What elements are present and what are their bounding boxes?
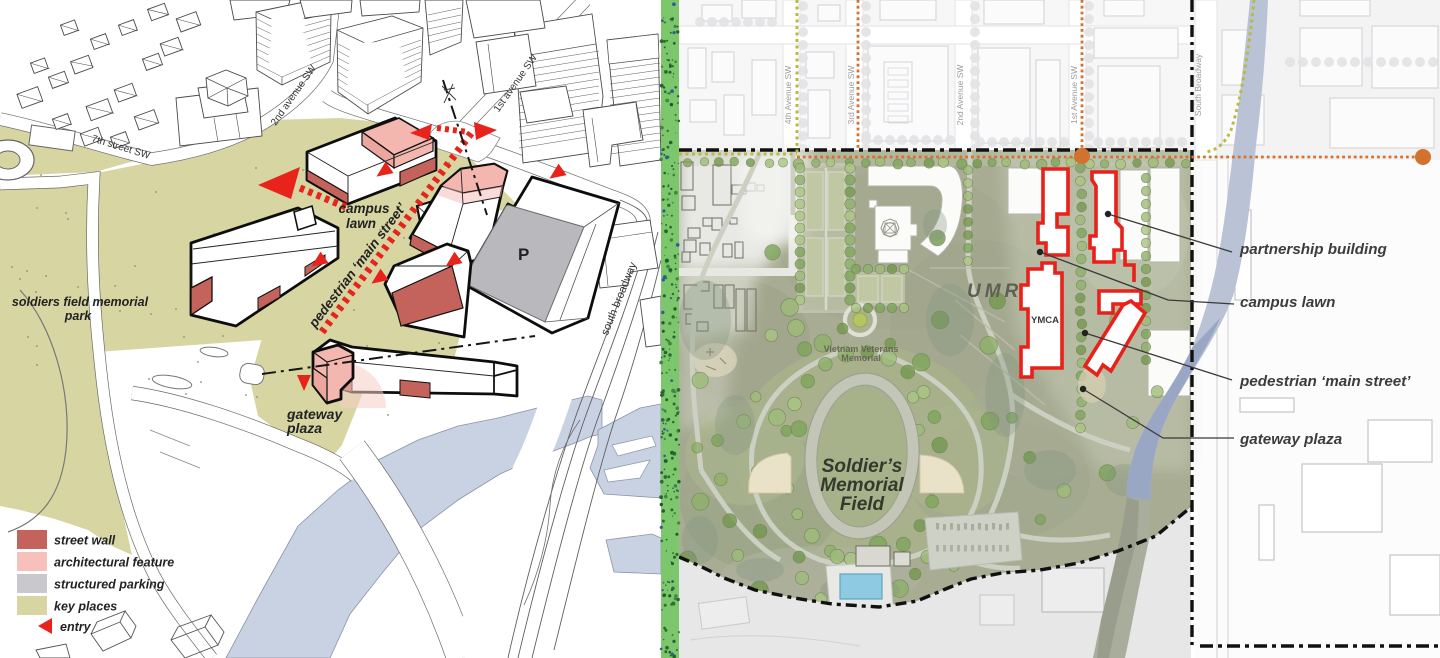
svg-text:Memorial: Memorial (820, 475, 904, 496)
svg-text:lawn: lawn (346, 216, 376, 231)
svg-text:2nd Avenue SW: 2nd Avenue SW (955, 65, 965, 126)
svg-text:3rd Avenue SW: 3rd Avenue SW (846, 66, 856, 125)
svg-text:YMCA: YMCA (1031, 315, 1059, 326)
svg-text:campus lawn: campus lawn (1240, 294, 1335, 311)
svg-text:P: P (518, 245, 529, 264)
svg-text:campus: campus (338, 201, 390, 216)
svg-text:pedestrian ‘main street’: pedestrian ‘main street’ (1239, 373, 1411, 390)
svg-text:gateway plaza: gateway plaza (1239, 431, 1342, 448)
svg-text:entry: entry (60, 620, 92, 634)
svg-text:structured parking: structured parking (54, 578, 165, 592)
svg-text:South Broadway: South Broadway (1193, 53, 1203, 116)
svg-text:Memorial: Memorial (841, 353, 881, 363)
svg-text:Field: Field (840, 494, 885, 515)
svg-text:park: park (64, 309, 92, 323)
svg-text:UMR: UMR (967, 281, 1022, 302)
svg-text:plaza: plaza (286, 420, 322, 436)
svg-text:Soldier’s: Soldier’s (822, 456, 903, 477)
svg-text:4th Avenue SW: 4th Avenue SW (783, 66, 793, 124)
svg-text:soldiers field memorial: soldiers field memorial (12, 295, 149, 309)
svg-text:architectural feature: architectural feature (54, 556, 174, 570)
svg-text:partnership building: partnership building (1239, 241, 1388, 258)
svg-text:street wall: street wall (54, 534, 116, 548)
svg-text:1st Avenue SW: 1st Avenue SW (1069, 66, 1079, 124)
svg-text:key places: key places (54, 600, 117, 614)
